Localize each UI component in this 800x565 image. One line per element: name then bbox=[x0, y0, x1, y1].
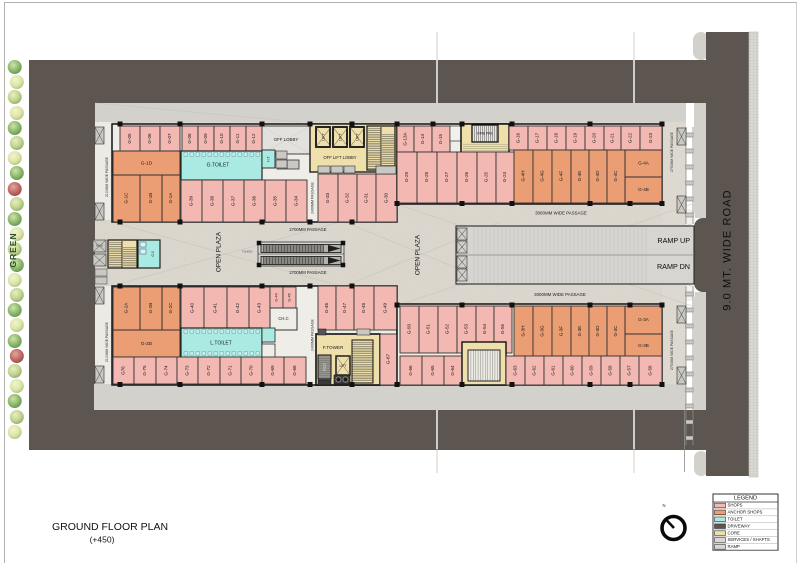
svg-text:G-50: G-50 bbox=[407, 323, 412, 334]
svg-text:G-3A: G-3A bbox=[638, 317, 650, 322]
svg-text:G-29: G-29 bbox=[404, 171, 409, 182]
svg-text:L.TOILET: L.TOILET bbox=[210, 340, 232, 346]
svg-text:G-08: G-08 bbox=[187, 133, 192, 144]
svg-text:G-35: G-35 bbox=[273, 195, 278, 206]
svg-text:TOILET: TOILET bbox=[728, 517, 743, 522]
svg-text:2100MM WIDE PASSAGE: 2100MM WIDE PASSAGE bbox=[105, 321, 109, 362]
svg-text:G-3D: G-3D bbox=[595, 325, 600, 337]
svg-text:G-70: G-70 bbox=[249, 365, 254, 376]
svg-text:2700MM PASSAGE: 2700MM PASSAGE bbox=[289, 227, 326, 232]
svg-text:G-3H: G-3H bbox=[521, 326, 526, 337]
svg-text:G-13A: G-13A bbox=[403, 131, 408, 145]
svg-text:G76: G76 bbox=[121, 366, 126, 375]
svg-text:G-4D: G-4D bbox=[595, 170, 600, 182]
svg-text:G-43: G-43 bbox=[257, 302, 262, 313]
svg-text:G-4B: G-4B bbox=[638, 187, 649, 192]
svg-text:G-67: G-67 bbox=[386, 353, 391, 364]
svg-text:G-1A: G-1A bbox=[168, 192, 173, 204]
svg-text:ANCHOR SHOPS: ANCHOR SHOPS bbox=[728, 510, 763, 515]
svg-text:G-63: G-63 bbox=[513, 365, 518, 376]
svg-text:3000MM WIDE PASSAGE: 3000MM WIDE PASSAGE bbox=[534, 292, 586, 297]
svg-text:G-53: G-53 bbox=[464, 323, 469, 334]
svg-text:F.TOWER: F.TOWER bbox=[323, 345, 344, 350]
svg-text:3000MM WIDE PASSAGE: 3000MM WIDE PASSAGE bbox=[535, 211, 587, 216]
svg-text:G-30: G-30 bbox=[384, 192, 389, 203]
svg-text:G-1B: G-1B bbox=[148, 193, 153, 204]
svg-text:G-57: G-57 bbox=[627, 365, 632, 376]
svg-text:G-52: G-52 bbox=[445, 323, 450, 334]
svg-text:G-37: G-37 bbox=[231, 195, 236, 206]
svg-text:G-26: G-26 bbox=[464, 171, 469, 182]
svg-text:A.H.U: A.H.U bbox=[96, 244, 103, 248]
svg-text:G-47: G-47 bbox=[342, 302, 347, 313]
svg-text:G-2A: G-2A bbox=[124, 302, 129, 314]
svg-text:OFF LOBBY: OFF LOBBY bbox=[274, 137, 299, 142]
svg-text:G-2C: G-2C bbox=[168, 302, 173, 314]
svg-text:G-34: G-34 bbox=[294, 195, 299, 206]
svg-text:G-17: G-17 bbox=[535, 132, 540, 143]
svg-text:G-3B: G-3B bbox=[638, 343, 649, 348]
svg-text:G-60: G-60 bbox=[570, 365, 575, 376]
svg-text:G-06: G-06 bbox=[147, 133, 152, 144]
svg-text:G-1D: G-1D bbox=[141, 160, 153, 166]
svg-text:G-56: G-56 bbox=[648, 365, 653, 376]
svg-text:G-49: G-49 bbox=[383, 302, 388, 313]
svg-text:T.W.8500: T.W.8500 bbox=[242, 250, 253, 254]
svg-text:2750MM WIDE PASSAGE: 2750MM WIDE PASSAGE bbox=[670, 131, 674, 172]
svg-text:G-1C: G-1C bbox=[124, 192, 129, 204]
svg-text:G-19: G-19 bbox=[573, 132, 578, 143]
svg-text:G-39: G-39 bbox=[189, 195, 194, 206]
svg-text:G-73: G-73 bbox=[185, 365, 190, 376]
svg-text:G-75: G-75 bbox=[142, 365, 147, 376]
svg-text:G-33: G-33 bbox=[325, 192, 330, 203]
svg-text:G-32: G-32 bbox=[345, 192, 350, 203]
svg-text:G-16: G-16 bbox=[516, 132, 521, 143]
svg-text:G-10: G-10 bbox=[219, 133, 224, 144]
svg-text:G-07: G-07 bbox=[167, 133, 172, 144]
svg-text:H.T: H.T bbox=[266, 156, 270, 161]
svg-text:G-71: G-71 bbox=[228, 365, 233, 376]
svg-text:CH.C: CH.C bbox=[278, 316, 288, 321]
svg-text:G-22: G-22 bbox=[628, 132, 633, 143]
svg-text:OFF LIFT LOBBY: OFF LIFT LOBBY bbox=[323, 155, 356, 160]
svg-text:LIFT: LIFT bbox=[321, 133, 325, 141]
svg-text:G-44: G-44 bbox=[275, 293, 279, 301]
svg-text:G-4G: G-4G bbox=[540, 170, 545, 182]
svg-text:G-2B: G-2B bbox=[148, 303, 153, 314]
svg-text:(+450): (+450) bbox=[90, 534, 115, 544]
svg-text:G-24: G-24 bbox=[502, 171, 507, 182]
svg-text:G-48: G-48 bbox=[361, 302, 366, 313]
svg-text:G-25: G-25 bbox=[484, 171, 489, 182]
svg-text:RAMP DN: RAMP DN bbox=[657, 262, 690, 271]
svg-text:G-23: G-23 bbox=[648, 132, 653, 143]
svg-text:G-65: G-65 bbox=[430, 365, 435, 376]
svg-text:G-3F: G-3F bbox=[559, 326, 564, 337]
svg-text:G-05: G-05 bbox=[127, 133, 132, 144]
svg-text:G-14: G-14 bbox=[420, 133, 425, 144]
svg-text:G-31: G-31 bbox=[364, 192, 369, 203]
svg-text:G-69: G-69 bbox=[270, 365, 275, 376]
svg-text:GROUND FLOOR PLAN: GROUND FLOOR PLAN bbox=[52, 521, 168, 533]
svg-text:G-2D: G-2D bbox=[141, 341, 153, 347]
svg-text:LIFT: LIFT bbox=[340, 364, 347, 368]
svg-text:G-15: G-15 bbox=[438, 133, 443, 144]
svg-text:G-38: G-38 bbox=[210, 195, 215, 206]
svg-text:G-66: G-66 bbox=[408, 365, 413, 376]
svg-text:G-4C: G-4C bbox=[613, 170, 618, 182]
svg-text:G-21: G-21 bbox=[610, 132, 615, 143]
svg-text:G-4H: G-4H bbox=[521, 171, 526, 182]
svg-text:G-45: G-45 bbox=[288, 293, 292, 301]
svg-text:N: N bbox=[662, 503, 665, 508]
svg-text:RAMP: RAMP bbox=[728, 544, 741, 549]
svg-text:G-09: G-09 bbox=[203, 133, 208, 144]
svg-text:SHOPS: SHOPS bbox=[728, 503, 743, 508]
svg-text:G-4F: G-4F bbox=[559, 171, 564, 182]
svg-text:LIFT: LIFT bbox=[355, 133, 359, 141]
svg-text:G-20: G-20 bbox=[592, 132, 597, 143]
svg-text:DRIVEWAY: DRIVEWAY bbox=[728, 523, 751, 528]
svg-text:G-12: G-12 bbox=[251, 133, 256, 144]
svg-text:2750MM WIDE PASSAGE: 2750MM WIDE PASSAGE bbox=[670, 329, 674, 370]
svg-text:G-11: G-11 bbox=[235, 133, 240, 143]
svg-text:2100MM WIDE PASSAGE: 2100MM WIDE PASSAGE bbox=[105, 156, 109, 197]
svg-text:SERVICES / SHAFTS: SERVICES / SHAFTS bbox=[728, 537, 770, 542]
svg-text:G-54: G-54 bbox=[482, 323, 487, 334]
svg-text:9.0 MT. WIDE ROAD: 9.0 MT. WIDE ROAD bbox=[721, 189, 733, 310]
svg-text:G-64: G-64 bbox=[450, 365, 455, 376]
svg-text:G-46: G-46 bbox=[324, 302, 329, 313]
svg-text:G-68: G-68 bbox=[292, 365, 297, 376]
svg-text:G-18: G-18 bbox=[554, 132, 559, 143]
svg-text:RAMP UP: RAMP UP bbox=[657, 236, 690, 245]
svg-text:G-61: G-61 bbox=[551, 365, 556, 376]
svg-text:LIFT: LIFT bbox=[338, 133, 342, 141]
svg-text:G-27: G-27 bbox=[444, 171, 449, 182]
svg-text:G-3E: G-3E bbox=[577, 326, 582, 337]
svg-text:G-55: G-55 bbox=[500, 323, 505, 334]
svg-text:FIRE PAS: FIRE PAS bbox=[477, 131, 493, 135]
svg-text:GREEN: GREEN bbox=[8, 232, 18, 267]
svg-text:2400MM PASSAGE: 2400MM PASSAGE bbox=[310, 181, 314, 213]
svg-text:G-4E: G-4E bbox=[577, 171, 582, 182]
svg-text:G-72: G-72 bbox=[206, 365, 211, 376]
svg-text:G-28: G-28 bbox=[424, 171, 429, 182]
svg-text:CORE: CORE bbox=[728, 530, 741, 535]
svg-text:2700MM PASSAGE: 2700MM PASSAGE bbox=[289, 270, 326, 275]
svg-text:G.TOILET: G.TOILET bbox=[207, 162, 230, 168]
svg-text:G-0: G-0 bbox=[151, 251, 155, 257]
svg-text:2400MM PASSAGE: 2400MM PASSAGE bbox=[310, 318, 314, 350]
svg-text:G-36: G-36 bbox=[252, 195, 257, 206]
svg-text:G-41: G-41 bbox=[213, 302, 218, 313]
svg-text:G-51: G-51 bbox=[426, 323, 431, 334]
svg-text:G-3C: G-3C bbox=[613, 325, 618, 337]
svg-text:LEGEND: LEGEND bbox=[734, 496, 757, 502]
svg-text:OPEN PLAZA: OPEN PLAZA bbox=[216, 231, 223, 272]
svg-text:G-40: G-40 bbox=[190, 302, 195, 313]
svg-text:G-3G: G-3G bbox=[540, 325, 545, 337]
svg-text:OPEN PLAZA: OPEN PLAZA bbox=[415, 234, 422, 275]
svg-text:G-42: G-42 bbox=[235, 302, 240, 313]
svg-text:G-58: G-58 bbox=[608, 365, 613, 376]
svg-text:G-4A: G-4A bbox=[638, 161, 650, 166]
svg-text:G-62: G-62 bbox=[532, 365, 537, 376]
svg-text:G-59: G-59 bbox=[589, 365, 594, 376]
svg-text:G-74: G-74 bbox=[164, 365, 169, 376]
svg-text:ELC: ELC bbox=[323, 363, 327, 371]
